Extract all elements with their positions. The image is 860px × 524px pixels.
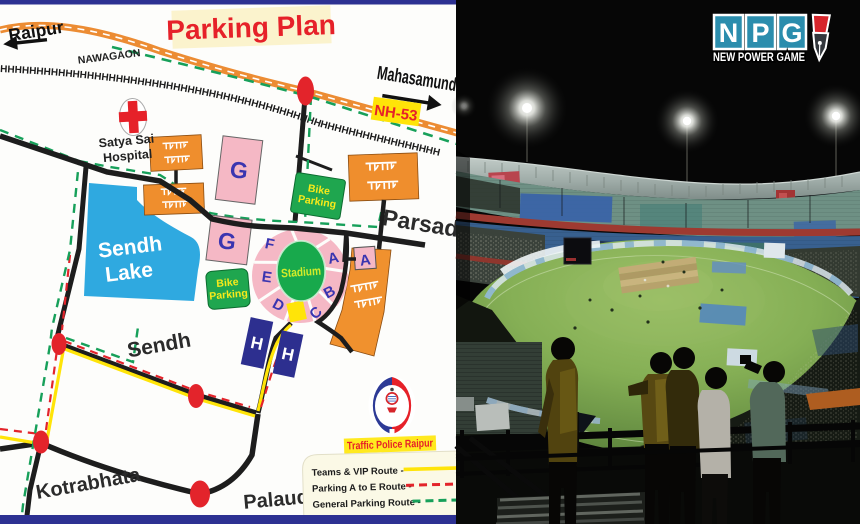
svg-text:NEW POWER GAME: NEW POWER GAME — [713, 52, 805, 64]
svg-text:G: G — [229, 156, 250, 184]
svg-text:P: P — [751, 18, 769, 48]
svg-text:G: G — [217, 227, 238, 255]
svg-text:N: N — [719, 18, 739, 48]
svg-text:G: G — [781, 18, 802, 48]
svg-text:Stadium: Stadium — [281, 264, 322, 281]
svg-text:Parking Plan: Parking Plan — [166, 9, 337, 46]
